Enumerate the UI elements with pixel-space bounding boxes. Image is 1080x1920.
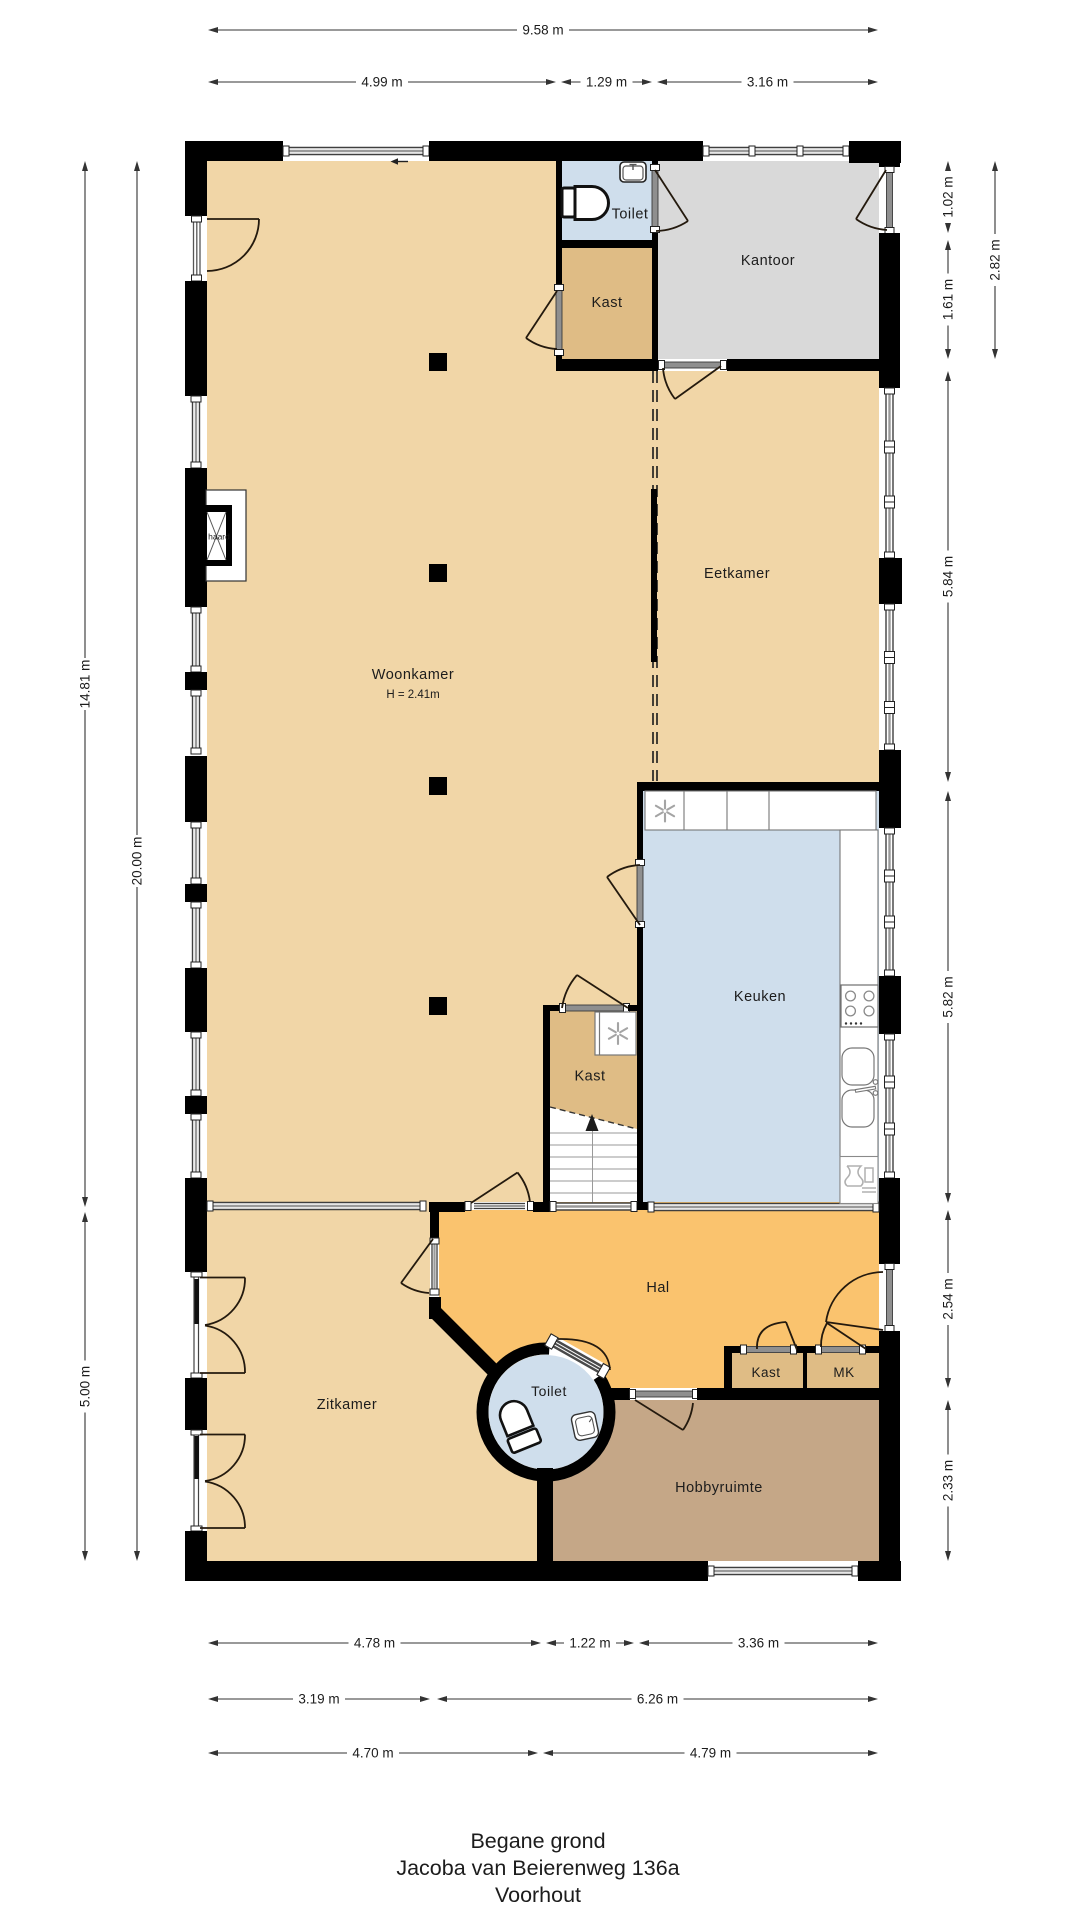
svg-text:1.02 m: 1.02 m [941,176,956,217]
svg-text:9.58 m: 9.58 m [522,23,563,38]
svg-text:2.33 m: 2.33 m [941,1460,956,1501]
svg-text:2.82 m: 2.82 m [988,239,1003,280]
svg-text:1.61 m: 1.61 m [941,279,956,320]
svg-text:3.36 m: 3.36 m [738,1636,779,1651]
svg-text:Kast: Kast [591,295,622,311]
svg-text:Kast: Kast [574,1069,605,1085]
svg-text:5.00 m: 5.00 m [78,1366,93,1407]
svg-text:Hobbyruimte: Hobbyruimte [675,1480,763,1496]
svg-text:1.22 m: 1.22 m [569,1636,610,1651]
svg-text:4.78 m: 4.78 m [354,1636,395,1651]
svg-text:4.79 m: 4.79 m [690,1746,731,1761]
svg-text:Hal: Hal [646,1280,669,1296]
svg-text:Voorhout: Voorhout [495,1883,581,1907]
svg-text:4.99 m: 4.99 m [361,75,402,90]
svg-text:4.70 m: 4.70 m [352,1746,393,1761]
svg-text:5.82 m: 5.82 m [941,976,956,1017]
svg-text:20.00 m: 20.00 m [130,837,145,886]
svg-text:Toilet: Toilet [612,207,649,223]
svg-text:6.26 m: 6.26 m [637,1692,678,1707]
svg-text:Toilet: Toilet [531,1383,567,1399]
svg-text:Keuken: Keuken [734,989,786,1005]
svg-text:haard: haard [208,532,230,542]
svg-text:3.19 m: 3.19 m [298,1692,339,1707]
svg-text:Kast: Kast [751,1365,780,1380]
svg-text:Eetkamer: Eetkamer [704,566,770,582]
svg-text:Begane grond: Begane grond [470,1829,605,1853]
svg-text:1.29 m: 1.29 m [586,75,627,90]
svg-text:3.16 m: 3.16 m [747,75,788,90]
svg-text:MK: MK [833,1365,854,1380]
svg-text:Woonkamer: Woonkamer [372,667,454,683]
svg-text:H = 2.41m: H = 2.41m [386,689,439,701]
svg-text:5.84 m: 5.84 m [941,556,956,597]
svg-text:Jacoba van Beierenweg 136a: Jacoba van Beierenweg 136a [396,1856,679,1880]
svg-text:14.81 m: 14.81 m [78,660,93,709]
svg-text:Kantoor: Kantoor [741,253,795,269]
svg-text:Zitkamer: Zitkamer [317,1397,377,1413]
svg-text:2.54 m: 2.54 m [941,1278,956,1319]
